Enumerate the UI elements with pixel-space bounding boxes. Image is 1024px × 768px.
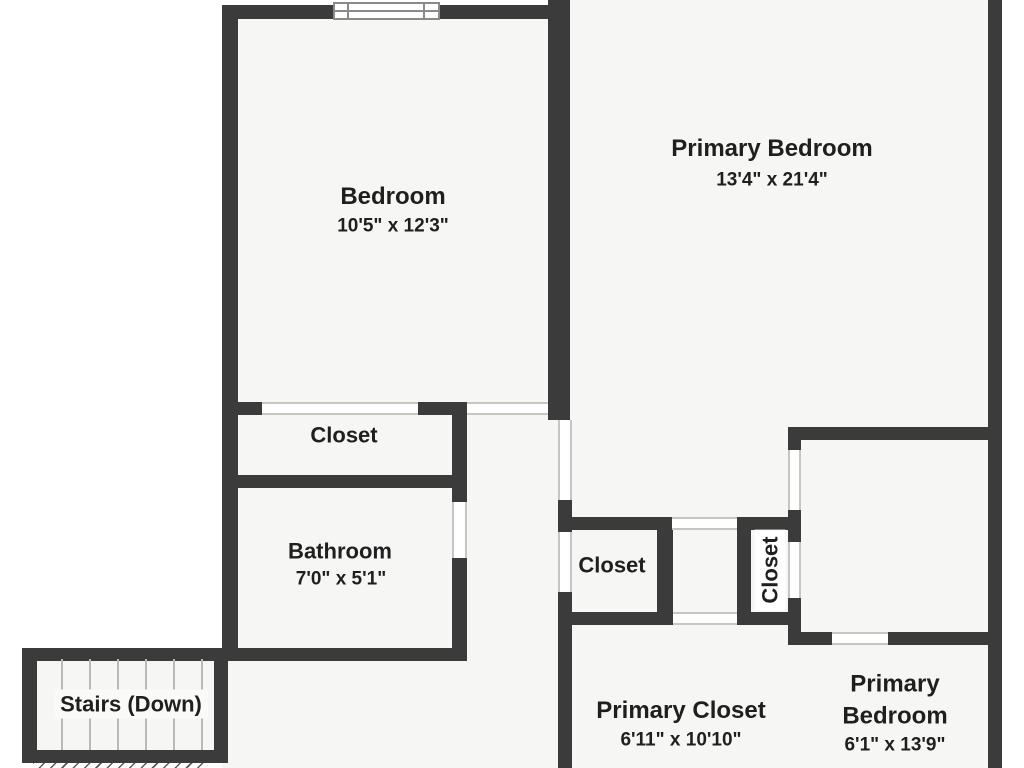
opening-bedroom2-door — [788, 450, 801, 510]
room-dims-primary-closet: 6'11" x 10'10" — [620, 727, 741, 752]
wall-stairs-bottom — [22, 750, 228, 763]
room-dims-bathroom: 7'0" x 5'1" — [296, 566, 386, 591]
wall-upper-right-horizontal — [788, 427, 1001, 440]
wall-midcloset-right — [657, 517, 673, 625]
window-mid-line — [335, 10, 438, 12]
wall-left-outer — [222, 5, 238, 661]
floor-primary-top — [570, 0, 1001, 20]
room-label-bathroom: Bathroom — [288, 536, 392, 565]
opening-midcloset-door — [558, 532, 572, 592]
wall-lower-right-horizontal — [888, 632, 1001, 645]
room-label-closet-bedroom: Closet — [310, 420, 377, 449]
room-label-closet-vertical: Closet — [754, 529, 785, 610]
wall-bedroom-bottom-left — [222, 402, 262, 415]
room-label-primary-closet: Primary Closet — [596, 695, 765, 727]
wall-bedroom-primary-divider — [548, 0, 570, 420]
room-label-primary-bedroom-2: Primary Bedroom — [842, 668, 947, 731]
wall-stairs-right — [214, 648, 228, 763]
wall-stairs-left — [22, 648, 37, 763]
room-label-closet-middle: Closet — [578, 550, 645, 579]
opening-bedroom-door — [467, 402, 548, 415]
wall-right-outer — [988, 0, 1002, 768]
opening-primary-bottom — [672, 517, 737, 530]
room-dims-primary-bedroom: 13'4" x 21'4" — [716, 167, 828, 192]
opening-primary-closet-entry — [673, 612, 737, 625]
wall-east-vertical-b — [788, 510, 801, 542]
opening-bedroom2-south-door — [832, 632, 888, 645]
wall-primary-bottom-left — [558, 517, 672, 530]
opening-bathroom-door — [452, 502, 467, 558]
room-label-bedroom: Bedroom — [340, 181, 445, 213]
room-dims-bedroom: 10'5" x 12'3" — [337, 213, 449, 238]
wall-lower-right-stub — [788, 632, 832, 645]
wall-closet-bathroom-divider — [222, 475, 467, 488]
room-label-primary-bedroom: Primary Bedroom — [671, 133, 872, 165]
wall-midcloset-bottom — [558, 612, 673, 625]
wall-hall-west-lower — [452, 558, 467, 661]
wall-vcloset-left — [737, 517, 751, 625]
opening-bedroom-closet — [262, 402, 418, 415]
opening-primary-door — [558, 420, 572, 500]
room-label-stairs: Stairs (Down) — [54, 689, 208, 718]
room-dims-primary-bedroom-2: 6'1" x 13'9" — [844, 732, 945, 757]
floor-plan: Bedroom 10'5" x 12'3" Primary Bedroom 13… — [0, 0, 1024, 768]
opening-vcloset-door — [788, 542, 801, 598]
